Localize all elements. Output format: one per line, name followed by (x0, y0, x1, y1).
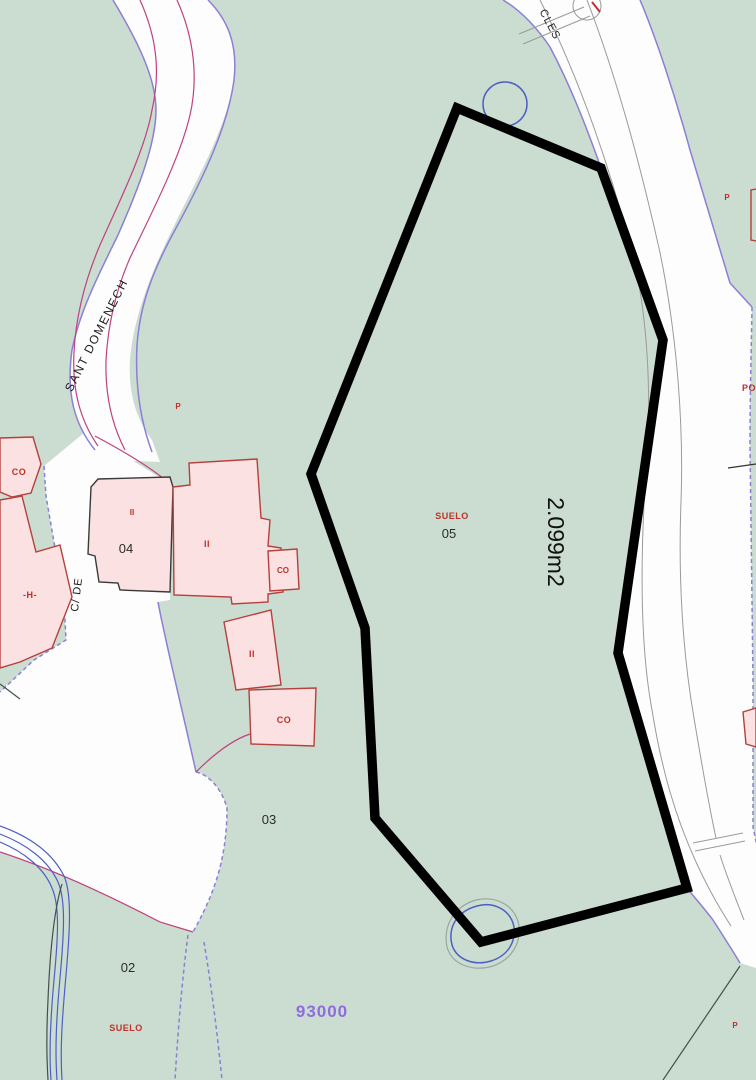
road-sant-domenech (70, 0, 235, 462)
building-large-ii (173, 459, 283, 604)
parcel-number-02: 02 (121, 960, 135, 975)
building-mark-co: CO (12, 467, 27, 477)
p-mark: P (724, 193, 730, 202)
parcel-edge-dashed (204, 942, 222, 1080)
p-mark: P (175, 402, 181, 411)
parcel-area-label: 2.099m2 (543, 497, 569, 587)
building-mark-ii: II (249, 649, 255, 659)
parcel-number-05: 05 (442, 526, 456, 541)
cadastral-map-canvas: SANT DOMENECH C/ DE CLES 2.099m2 SUELO 0… (0, 0, 756, 1080)
suelo-label-bottom: SUELO (109, 1023, 143, 1033)
p-mark: P (732, 1021, 738, 1030)
building-mark-ii: II (130, 508, 134, 517)
parcel-line (663, 966, 740, 1080)
stream-line (0, 842, 58, 1080)
po-partial-label: PO (742, 383, 756, 393)
suelo-label-center: SUELO (435, 511, 469, 521)
building-04 (88, 477, 173, 592)
building-mark-h: -H- (23, 590, 37, 600)
road-edge-magenta (196, 734, 250, 772)
building-mark-ii: II (204, 539, 210, 549)
building-mark-co: CO (277, 715, 292, 725)
zone-code-label: 93000 (296, 1002, 348, 1021)
building-outline-right-edge (751, 189, 756, 241)
parcel-number-04: 04 (119, 541, 133, 556)
map-svg: SANT DOMENECH C/ DE CLES 2.099m2 SUELO 0… (0, 0, 756, 1080)
parcel-number-03: 03 (262, 812, 276, 827)
building-mark-co: CO (277, 566, 289, 575)
parcel-edge-dashed (175, 935, 188, 1080)
